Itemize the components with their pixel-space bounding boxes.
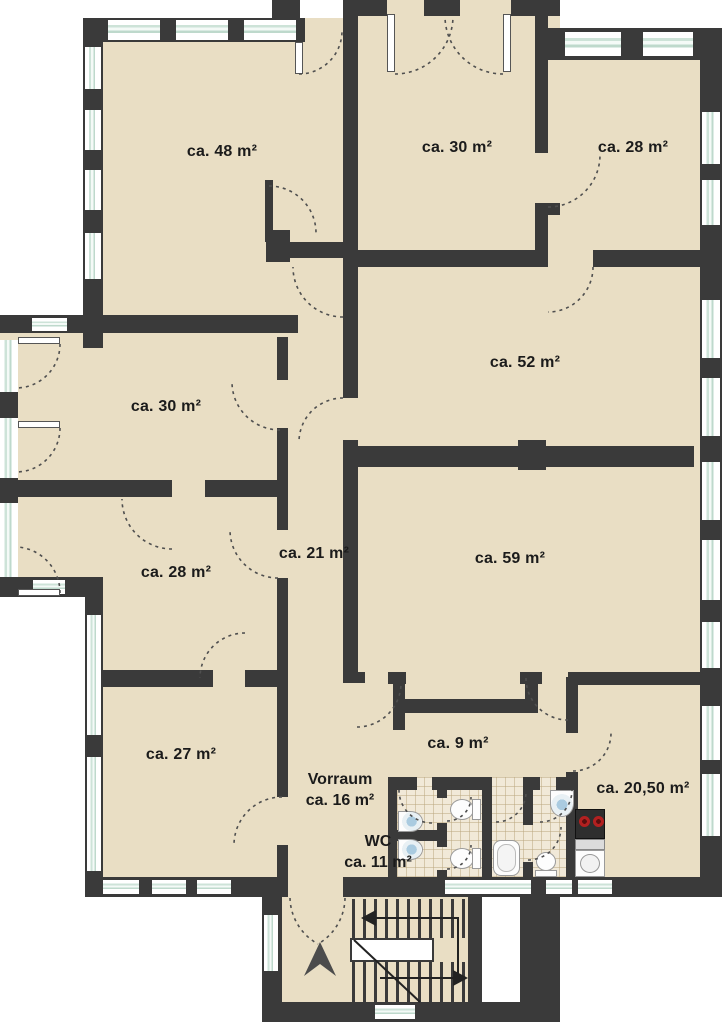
window-icon <box>264 915 278 971</box>
wall <box>535 28 722 60</box>
wall <box>0 480 172 497</box>
wall <box>245 670 288 687</box>
window-icon <box>85 233 101 279</box>
wall <box>593 250 722 267</box>
vorraum-label: Vorraum ca. 16 m² <box>306 769 374 811</box>
window-icon <box>176 20 228 40</box>
toilet-icon <box>536 852 556 871</box>
wall <box>0 392 18 418</box>
window-icon <box>85 47 101 89</box>
wall <box>556 777 578 790</box>
window-icon <box>565 32 621 56</box>
vorraum-name: Vorraum <box>308 771 373 788</box>
wall <box>388 777 417 790</box>
window-icon <box>702 774 720 836</box>
staircase <box>352 899 470 938</box>
sink-icon <box>398 811 423 832</box>
bathtub-inner <box>497 844 516 872</box>
room-9-label: ca. 9 m² <box>427 735 488 753</box>
toilet-tank <box>535 870 557 877</box>
room-52-label: ca. 52 m² <box>490 354 560 372</box>
toilet-tank <box>472 848 481 869</box>
wall <box>343 16 358 242</box>
window-icon <box>702 706 720 760</box>
wall <box>520 877 538 1005</box>
room-28-left-label: ca. 28 m² <box>141 564 211 582</box>
window-icon <box>375 1005 415 1019</box>
window-icon <box>445 880 531 894</box>
wall <box>277 337 288 380</box>
wall <box>343 250 548 267</box>
toilet-icon <box>450 848 474 869</box>
window-icon <box>85 110 101 150</box>
door-leaf <box>503 14 511 72</box>
wall <box>566 677 578 733</box>
toilet-icon <box>450 799 474 820</box>
door-leaf <box>387 14 395 72</box>
wall <box>277 428 288 530</box>
wall <box>523 777 540 790</box>
window-icon <box>702 378 720 436</box>
wall <box>277 578 288 797</box>
door-leaf <box>295 42 303 74</box>
wall <box>405 699 525 713</box>
stair-landing <box>350 938 434 962</box>
wall <box>437 823 447 847</box>
wall <box>520 672 542 684</box>
toilet-tank <box>472 799 481 820</box>
stove-burner <box>579 816 590 827</box>
sink-icon <box>550 790 574 817</box>
window-icon <box>546 880 572 894</box>
kitchen-counter <box>575 839 605 850</box>
window-icon <box>702 622 720 668</box>
wall <box>568 672 722 685</box>
window-icon <box>87 757 101 871</box>
wall <box>388 672 406 684</box>
room-30-top-label: ca. 30 m² <box>422 139 492 157</box>
floor-area <box>343 0 560 267</box>
window-icon <box>103 880 139 894</box>
wc-label: WC ca. 11 m² <box>344 831 412 873</box>
room-21-label: ca. 21 m² <box>279 545 349 563</box>
door-leaf <box>18 421 60 428</box>
door-leaf <box>18 589 60 596</box>
wall <box>523 790 533 825</box>
room-2050-label: ca. 20,50 m² <box>596 780 689 798</box>
window-icon <box>0 503 18 577</box>
room-27-label: ca. 27 m² <box>146 746 216 764</box>
window-icon <box>702 462 720 520</box>
window-icon <box>108 20 160 40</box>
stove-burner <box>593 816 604 827</box>
wall <box>272 0 300 20</box>
wall <box>482 777 492 877</box>
floor-area <box>85 497 288 897</box>
wall <box>518 440 546 470</box>
wall <box>437 870 447 877</box>
window-icon <box>643 32 693 56</box>
room-48-label: ca. 48 m² <box>187 143 257 161</box>
window-icon <box>244 20 296 40</box>
wall <box>538 877 560 1022</box>
room-30-left-label: ca. 30 m² <box>131 398 201 416</box>
wc-name: WC <box>365 833 392 850</box>
window-icon <box>0 418 18 478</box>
window-icon <box>0 340 18 392</box>
wall <box>424 0 460 16</box>
window-icon <box>702 180 720 225</box>
room-28-top-label: ca. 28 m² <box>598 139 668 157</box>
window-icon <box>702 112 720 164</box>
wall <box>277 845 288 877</box>
window-icon <box>702 540 720 600</box>
wall <box>437 790 447 798</box>
wc-area: ca. 11 m² <box>344 854 412 871</box>
window-icon <box>87 615 101 735</box>
wall <box>535 203 560 215</box>
wall <box>468 890 482 1005</box>
staircase <box>352 962 470 1002</box>
kitchen-sink-basin <box>580 854 600 873</box>
wall <box>343 258 358 398</box>
wall <box>523 862 533 877</box>
window-icon <box>152 880 186 894</box>
vorraum-area: ca. 16 m² <box>306 792 374 809</box>
window-icon <box>702 300 720 358</box>
wall <box>266 230 290 262</box>
floor-plan: ca. 48 m² ca. 30 m² ca. 28 m² ca. 52 m² … <box>0 0 724 1024</box>
wall <box>205 480 288 497</box>
window-icon <box>578 880 612 894</box>
window-icon <box>197 880 231 894</box>
wall <box>343 672 365 683</box>
door-leaf <box>18 337 60 344</box>
wall <box>85 670 213 687</box>
elevator-shaft <box>482 897 520 1002</box>
wall <box>343 0 387 16</box>
room-59-label: ca. 59 m² <box>475 550 545 568</box>
window-icon <box>32 318 67 331</box>
window-icon <box>85 170 101 210</box>
